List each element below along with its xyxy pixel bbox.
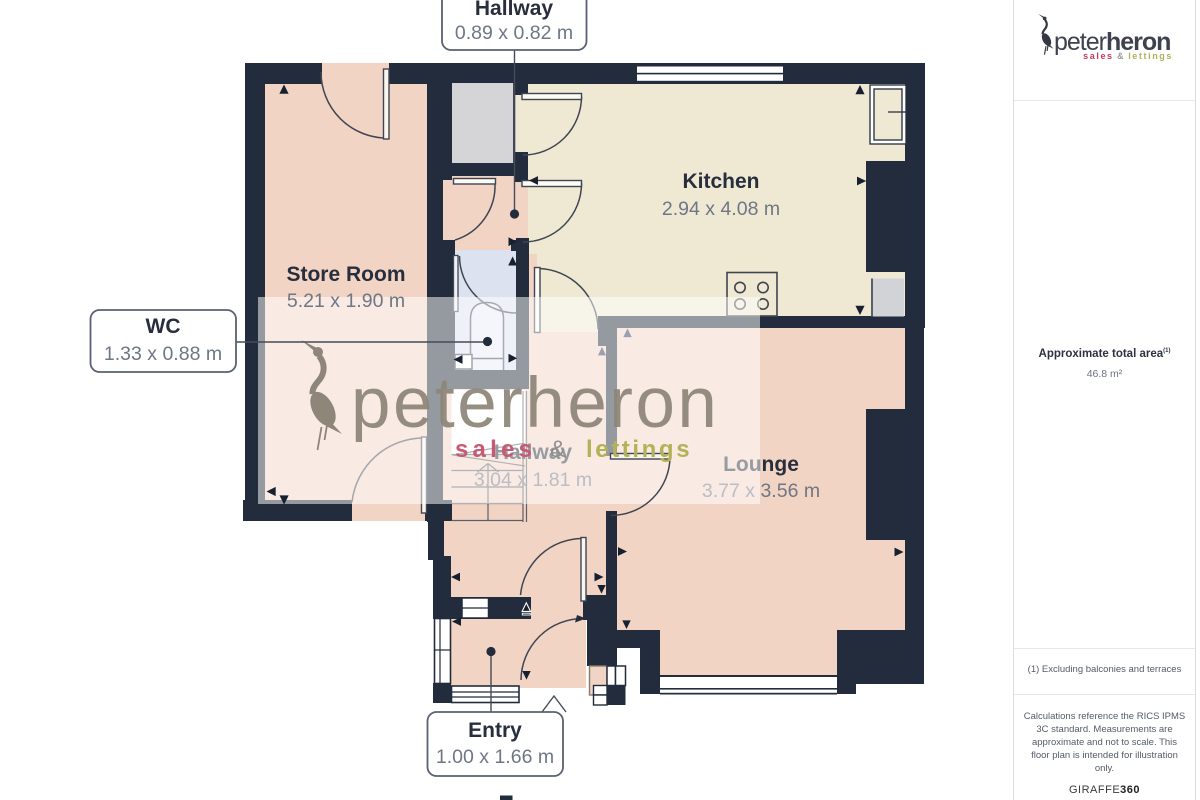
svg-text:0.89 x 0.82 m: 0.89 x 0.82 m xyxy=(455,22,573,44)
svg-text:5.21 x 1.90 m: 5.21 x 1.90 m xyxy=(287,290,405,312)
svg-text:2.94 x 4.08 m: 2.94 x 4.08 m xyxy=(662,198,780,220)
svg-text:peterheron: peterheron xyxy=(351,364,719,443)
svg-text:1.00 x 1.66 m: 1.00 x 1.66 m xyxy=(436,746,554,768)
svg-text:&: & xyxy=(550,436,566,463)
svg-text:Hallway: Hallway xyxy=(475,0,554,20)
svg-text:sales: sales xyxy=(455,436,536,463)
svg-text:Store Room: Store Room xyxy=(286,263,405,286)
svg-text:Entry: Entry xyxy=(468,719,522,742)
svg-text:1.33 x 0.88 m: 1.33 x 0.88 m xyxy=(104,343,222,365)
svg-text:WC: WC xyxy=(146,315,181,338)
svg-text:sales & lettings: sales & lettings xyxy=(1083,51,1173,61)
svg-text:Kitchen: Kitchen xyxy=(682,170,759,193)
svg-text:lettings: lettings xyxy=(586,436,692,463)
